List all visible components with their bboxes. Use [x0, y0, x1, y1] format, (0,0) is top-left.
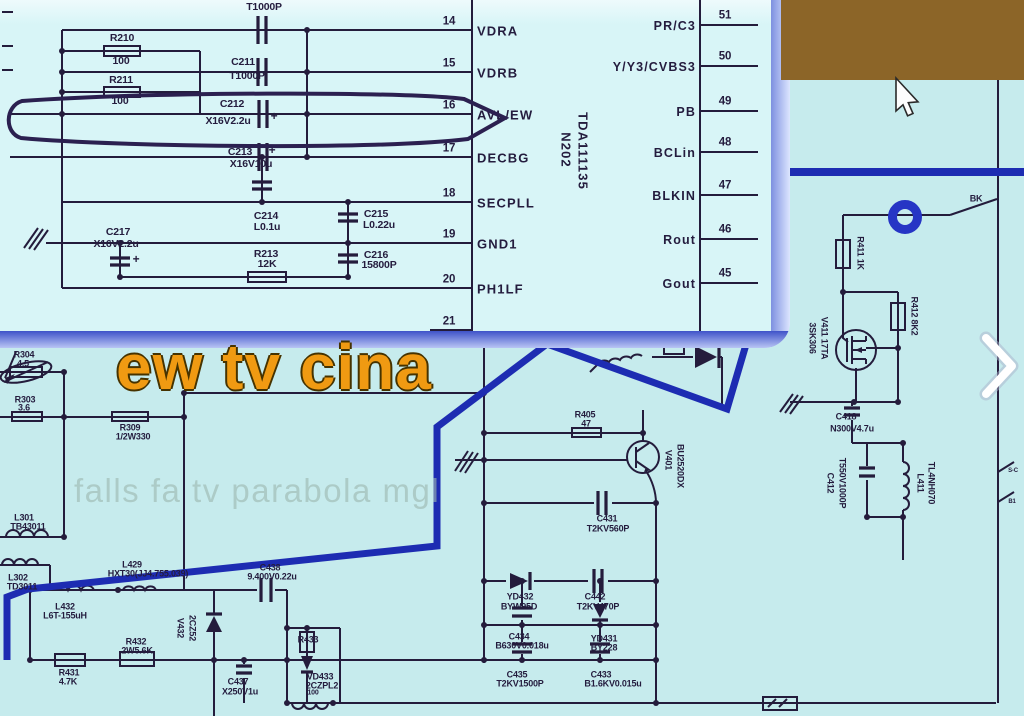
watermark-text: falls fa tv parabola mgl — [74, 472, 440, 510]
brown-top-strip — [781, 0, 1024, 80]
highlight-ring — [893, 205, 918, 230]
inset-wires — [2, 0, 758, 335]
schematic-viewer: R3044.5R3033.6R3091/2W330L301TB43011L302… — [0, 0, 1024, 716]
title-text: ew tv cina — [116, 330, 432, 404]
inset-panel: T1000PR210100C211T1000PR211100C212X16V2.… — [0, 0, 790, 348]
inset-schematic — [0, 0, 790, 348]
